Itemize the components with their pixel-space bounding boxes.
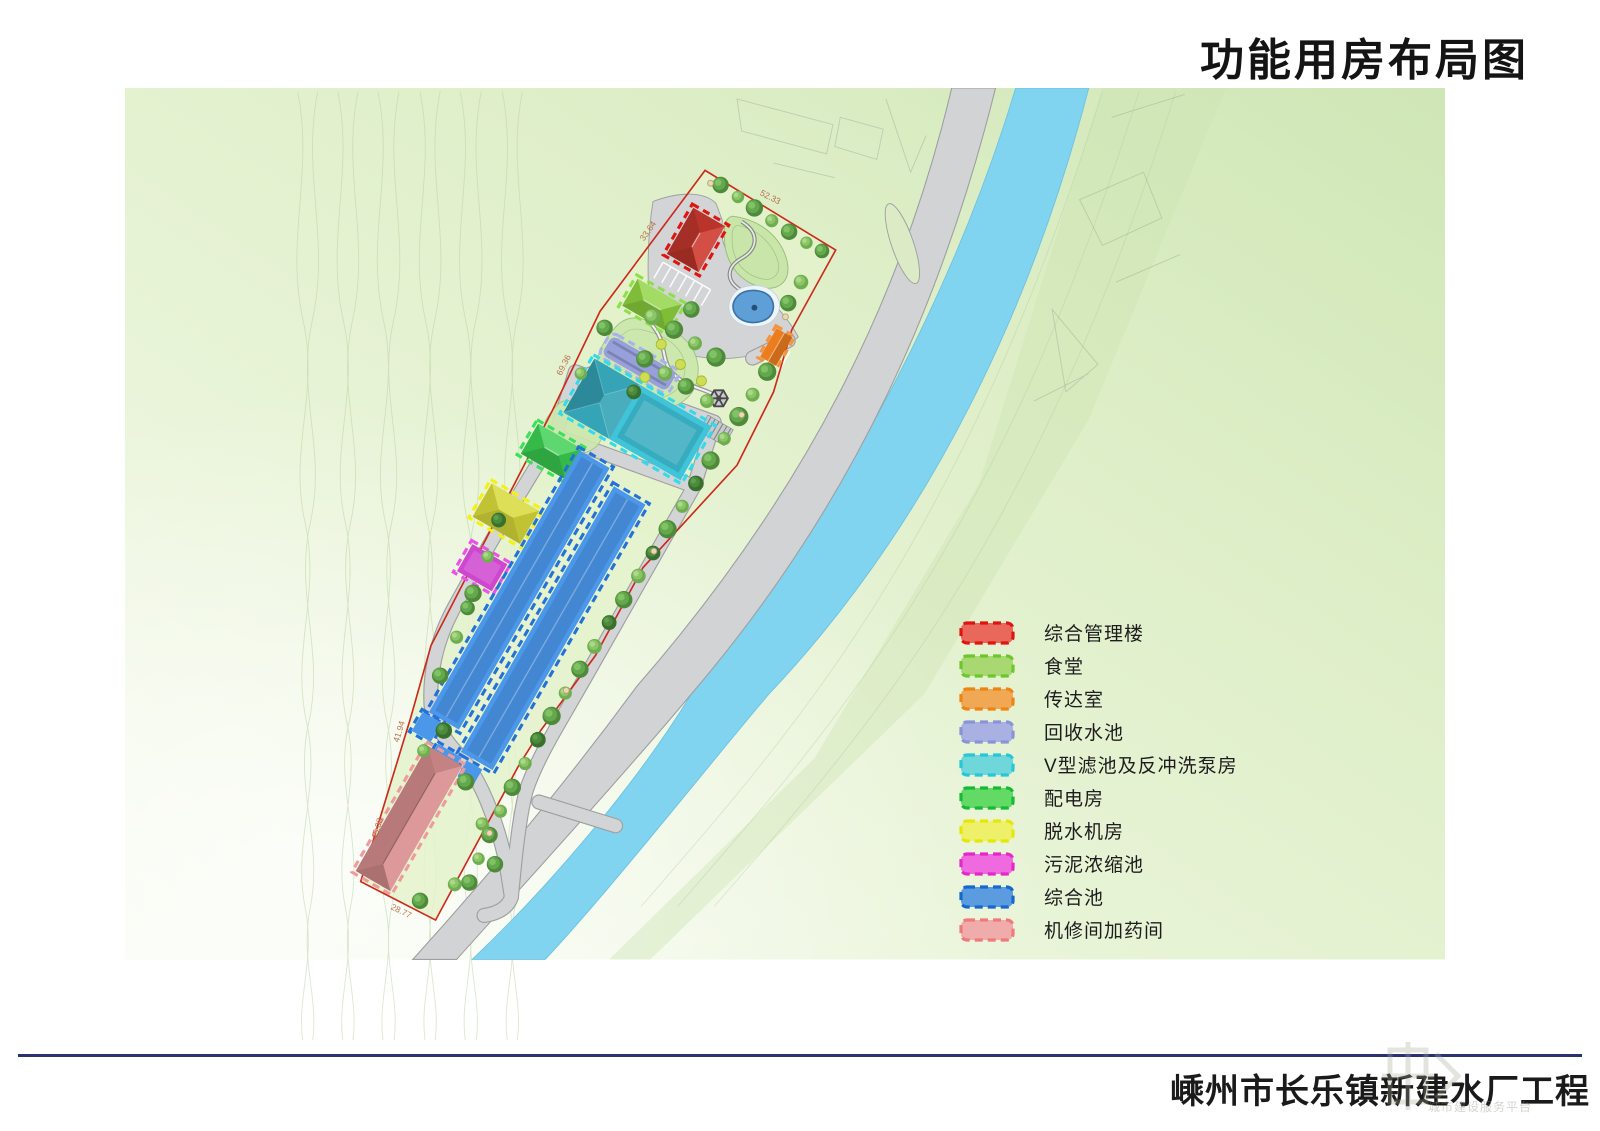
legend-label: 食堂: [1044, 652, 1084, 679]
legend-item: 传达室: [958, 682, 1238, 715]
legend-swatch: [958, 619, 1016, 647]
legend-item: 回收水池: [958, 715, 1238, 748]
legend-item: 配电房: [958, 781, 1238, 814]
legend-label: 污泥浓缩池: [1044, 850, 1144, 877]
legend-swatch: [958, 817, 1016, 845]
legend-item: 脱水机房: [958, 814, 1238, 847]
legend-swatch: [958, 916, 1016, 944]
site-plan-map: 52.33 33.64 69.36 41.94 45.08 28.77: [125, 88, 1445, 1040]
site-plan-svg: 52.33 33.64 69.36 41.94 45.08 28.77: [125, 88, 1445, 1040]
legend-label: 综合池: [1044, 883, 1104, 910]
legend-swatch: [958, 685, 1016, 713]
legend-item: 综合池: [958, 880, 1238, 913]
legend-label: 回收水池: [1044, 718, 1124, 745]
legend: 综合管理楼 食堂 传达室 回收水池 V型滤池及反冲洗泵房 配电房 脱水机房 污: [958, 616, 1238, 946]
legend-swatch: [958, 751, 1016, 779]
project-name: 嵊州市长乐镇新建水厂工程: [1170, 1064, 1590, 1113]
page-title: 功能用房布局图: [1200, 24, 1500, 88]
pond: [729, 285, 780, 326]
legend-item: 机修间加药间: [958, 913, 1238, 946]
legend-label: 配电房: [1044, 784, 1104, 811]
legend-item: V型滤池及反冲洗泵房: [958, 748, 1238, 781]
legend-item: 污泥浓缩池: [958, 847, 1238, 880]
legend-swatch: [958, 883, 1016, 911]
legend-label: 综合管理楼: [1044, 619, 1144, 646]
legend-item: 食堂: [958, 649, 1238, 682]
legend-swatch: [958, 652, 1016, 680]
legend-label: 传达室: [1044, 685, 1104, 712]
footer-rule: [18, 1054, 1582, 1057]
legend-swatch: [958, 850, 1016, 878]
legend-item: 综合管理楼: [958, 616, 1238, 649]
legend-label: V型滤池及反冲洗泵房: [1044, 751, 1238, 778]
legend-label: 机修间加药间: [1044, 916, 1164, 943]
legend-swatch: [958, 784, 1016, 812]
legend-swatch: [958, 718, 1016, 746]
legend-label: 脱水机房: [1044, 817, 1124, 844]
layout-drawing-page: 功能用房布局图: [0, 0, 1600, 1131]
